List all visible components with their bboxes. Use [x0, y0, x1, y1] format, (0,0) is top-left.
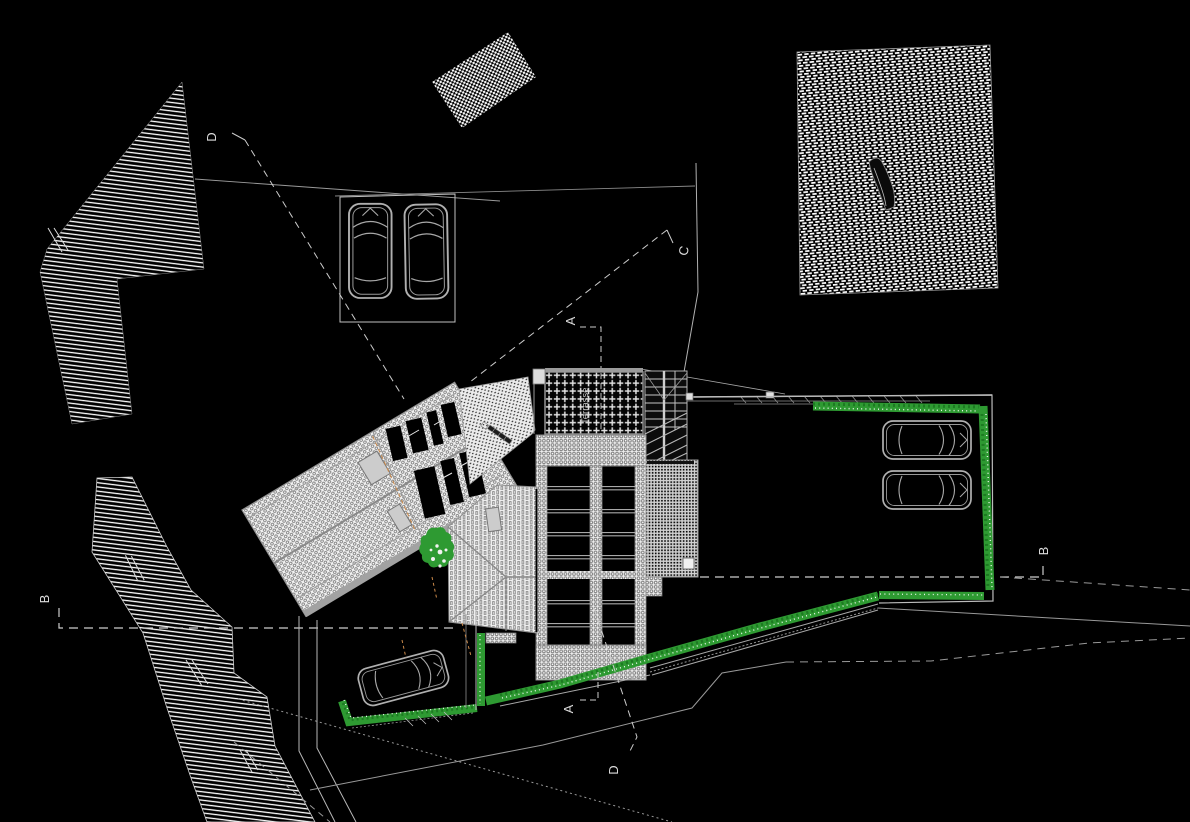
svg-text:A: A — [563, 316, 578, 325]
svg-text:Terrasse: Terrasse — [580, 388, 591, 424]
svg-text:B: B — [1036, 547, 1051, 556]
svg-text:A: A — [561, 704, 576, 713]
svg-text:D: D — [204, 132, 219, 141]
svg-text:B: B — [37, 595, 52, 604]
svg-text:D: D — [606, 765, 621, 774]
